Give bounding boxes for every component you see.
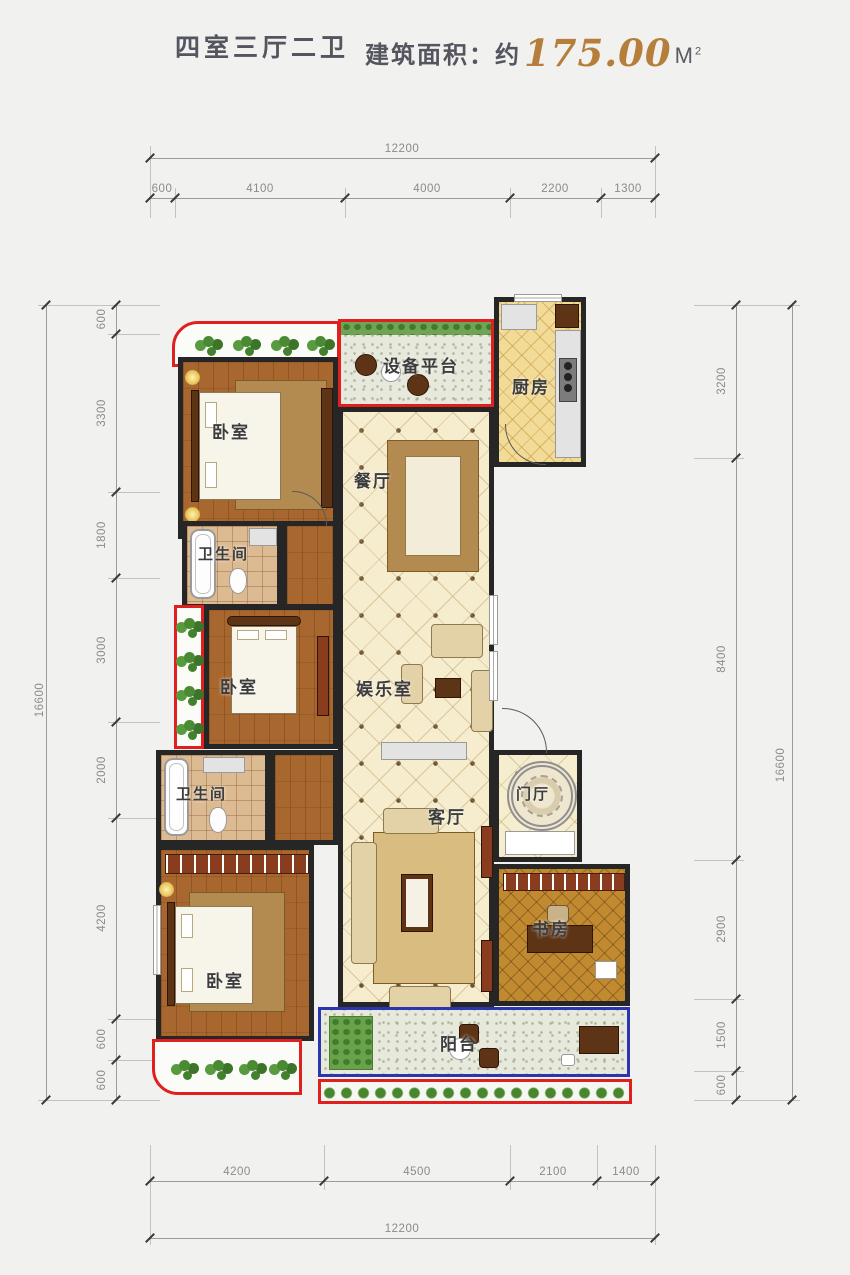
dim-left-seg-0: 600 bbox=[96, 309, 108, 330]
lamp-icon bbox=[159, 882, 174, 897]
floorplan-page: { "header": { "title": "四室三厅二卫", "area_l… bbox=[0, 0, 850, 1275]
fridge bbox=[555, 304, 579, 328]
dim-top-seg-2: 4000 bbox=[413, 183, 441, 195]
sink bbox=[203, 757, 245, 773]
sofa bbox=[431, 624, 483, 658]
bed-headboard bbox=[227, 616, 301, 626]
page-title: 四室三厅二卫 bbox=[175, 28, 349, 64]
dim-right-seg-4: 600 bbox=[716, 1075, 728, 1096]
dining-table bbox=[405, 456, 461, 556]
plant-icon bbox=[203, 336, 214, 347]
dim-right-total: 16600 bbox=[775, 748, 787, 782]
plant-icon bbox=[279, 336, 290, 347]
dim-top-seg-0: 600 bbox=[152, 183, 173, 195]
dim-right-seg-0: 3200 bbox=[716, 367, 728, 395]
plant-icon bbox=[213, 1060, 224, 1071]
floorplan: 卧室 设备平台 厨房 bbox=[150, 295, 662, 1110]
dim-right-seg-1: 8400 bbox=[716, 645, 728, 673]
dim-bottom-seg-0: 4200 bbox=[223, 1166, 251, 1178]
dim-left-total: 16600 bbox=[34, 683, 46, 717]
room-label-entry: 门厅 bbox=[516, 783, 550, 804]
dim-left-seg-6: 600 bbox=[96, 1029, 108, 1050]
wardrobe bbox=[165, 854, 309, 874]
toilet bbox=[229, 568, 247, 594]
lamp-icon bbox=[185, 370, 200, 385]
door-arc bbox=[505, 424, 546, 465]
hedge-plants bbox=[341, 322, 491, 335]
plant-icon bbox=[184, 720, 195, 731]
room-label-bathroom-top: 卫生间 bbox=[198, 543, 249, 564]
bed-headboard bbox=[191, 390, 199, 502]
bench bbox=[579, 1026, 619, 1054]
balcony-planter bbox=[329, 1016, 373, 1070]
plant-icon bbox=[184, 686, 195, 697]
area-label: 建筑面积：约 bbox=[365, 42, 521, 69]
side-table bbox=[435, 678, 461, 698]
plant-icon bbox=[184, 618, 195, 629]
dim-top-total: 12200 bbox=[385, 143, 419, 155]
dim-top-seg-3: 2200 bbox=[541, 183, 569, 195]
dim-bottom-seg-1: 4500 bbox=[403, 1166, 431, 1178]
bookshelf bbox=[503, 873, 625, 891]
area-value: 175.00 bbox=[521, 31, 675, 75]
dim-left-seg-2: 1800 bbox=[96, 521, 108, 549]
dim-left-seg-7: 600 bbox=[96, 1070, 108, 1091]
console-table bbox=[481, 940, 493, 992]
corridor bbox=[282, 521, 338, 609]
side-table bbox=[595, 961, 617, 979]
plant-icon bbox=[277, 1060, 288, 1071]
room-label-bedroom-bottom: 卧室 bbox=[206, 967, 244, 992]
dim-left-seg-3: 3000 bbox=[96, 636, 108, 664]
dim-right-seg-3: 1500 bbox=[716, 1021, 728, 1049]
shoe-cabinet bbox=[505, 831, 575, 855]
room-label-dining: 餐厅 bbox=[354, 467, 392, 492]
pillow bbox=[181, 968, 193, 992]
area-unit: M2 bbox=[675, 43, 703, 68]
flower-bed-bottom bbox=[318, 1079, 632, 1104]
dim-bottom-total: 12200 bbox=[385, 1223, 419, 1235]
room-label-equipment-platform: 设备平台 bbox=[383, 352, 459, 377]
planter-box-left bbox=[174, 605, 204, 749]
bed-headboard bbox=[167, 902, 175, 1006]
pillow bbox=[237, 630, 259, 640]
pillow bbox=[205, 462, 217, 488]
dresser bbox=[317, 636, 329, 716]
room-central-hall bbox=[338, 407, 494, 1007]
stove bbox=[559, 358, 577, 402]
pillow bbox=[265, 630, 287, 640]
stool bbox=[561, 1054, 575, 1066]
entrance-door-arc bbox=[502, 708, 547, 753]
coffee-table bbox=[401, 874, 433, 932]
tv-bench bbox=[381, 742, 467, 760]
chair bbox=[479, 1048, 499, 1068]
window bbox=[153, 905, 161, 975]
plant-icon bbox=[241, 336, 252, 347]
console-table bbox=[481, 826, 493, 878]
plant-icon bbox=[179, 1060, 190, 1071]
room-label-kitchen: 厨房 bbox=[512, 373, 550, 398]
pillow bbox=[181, 914, 193, 938]
plant-icon bbox=[184, 652, 195, 663]
lamp-icon bbox=[185, 507, 200, 522]
dim-left-seg-1: 3300 bbox=[96, 399, 108, 427]
kitchen-sink bbox=[501, 304, 537, 330]
sink bbox=[249, 528, 277, 546]
dim-right-seg-2: 2900 bbox=[716, 915, 728, 943]
room-label-bedroom-top: 卧室 bbox=[212, 418, 250, 443]
plant-icon bbox=[247, 1060, 258, 1071]
dim-bottom-seg-3: 1400 bbox=[612, 1166, 640, 1178]
plant-icon bbox=[315, 336, 326, 347]
room-label-living: 客厅 bbox=[428, 803, 466, 828]
window bbox=[489, 651, 498, 701]
dim-top-seg-1: 4100 bbox=[246, 183, 274, 195]
dim-left-seg-4: 2000 bbox=[96, 756, 108, 784]
planter-box-bottom-left bbox=[152, 1039, 302, 1095]
wardrobe bbox=[321, 388, 333, 508]
room-label-study: 书房 bbox=[532, 915, 570, 940]
room-label-balcony: 阳台 bbox=[440, 1030, 478, 1055]
dim-bottom-seg-2: 2100 bbox=[539, 1166, 567, 1178]
room-bathroom-top bbox=[182, 521, 282, 609]
room-label-bathroom-bottom: 卫生间 bbox=[176, 783, 227, 804]
corridor bbox=[270, 750, 338, 845]
window bbox=[489, 595, 498, 645]
toilet bbox=[209, 807, 227, 833]
area-text: 建筑面积：约175.00M2 bbox=[365, 28, 703, 72]
sofa-long bbox=[351, 842, 377, 964]
window bbox=[514, 294, 562, 302]
room-bedroom-bottom bbox=[156, 845, 314, 1041]
bathtub bbox=[190, 529, 216, 599]
dim-left-seg-5: 4200 bbox=[96, 904, 108, 932]
room-label-bedroom-mid: 卧室 bbox=[220, 673, 258, 698]
room-label-entertainment: 娱乐室 bbox=[356, 675, 413, 700]
room-entry bbox=[494, 750, 582, 862]
dim-top-seg-4: 1300 bbox=[614, 183, 642, 195]
chair bbox=[355, 354, 377, 376]
chair bbox=[407, 374, 429, 396]
